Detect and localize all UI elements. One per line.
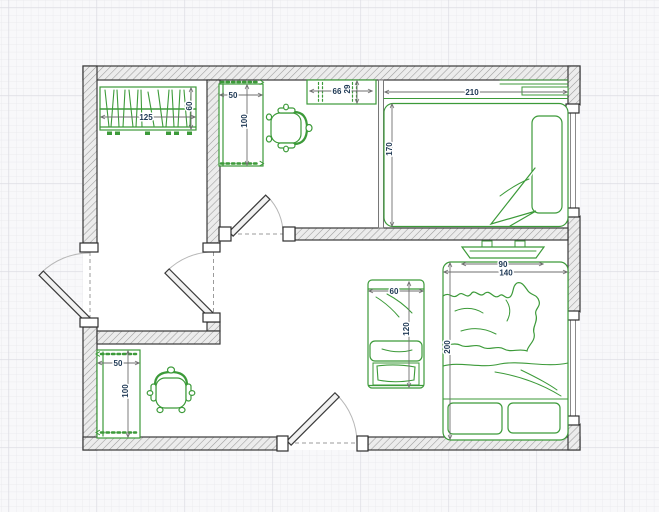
dim-desk-width: 50 bbox=[229, 91, 238, 100]
wall-interior-vertical-stub[interactable] bbox=[207, 322, 220, 331]
door-post bbox=[283, 227, 295, 241]
door-post bbox=[203, 313, 220, 322]
bed[interactable] bbox=[443, 262, 568, 440]
wall-interior-horizontal-left[interactable] bbox=[97, 331, 220, 344]
wall-left-upper[interactable] bbox=[83, 66, 97, 243]
partition-thin-wall[interactable] bbox=[379, 80, 384, 228]
door-post bbox=[80, 243, 98, 252]
dim-bottom-bed-length: 200 bbox=[443, 340, 452, 354]
pillow bbox=[508, 403, 560, 433]
door-post bbox=[203, 243, 220, 252]
chaise-lounge[interactable] bbox=[368, 280, 424, 388]
dim-small-bed-length: 100 bbox=[121, 384, 130, 398]
pillow bbox=[532, 116, 562, 213]
dim-small-bed-width: 50 bbox=[114, 359, 123, 368]
dim-desk-depth: 100 bbox=[240, 114, 249, 128]
pillow bbox=[448, 403, 502, 434]
door-post bbox=[357, 436, 368, 451]
dim-bottom-bed-width: 140 bbox=[499, 269, 513, 278]
double-bed[interactable] bbox=[384, 99, 568, 227]
wall-right-bottom[interactable] bbox=[568, 424, 580, 450]
wall-right-middle[interactable] bbox=[568, 216, 580, 312]
dim-shelf-depth: 29 bbox=[343, 84, 352, 93]
wardrobe[interactable] bbox=[100, 87, 196, 135]
dim-double-bed-width: 210 bbox=[465, 88, 479, 97]
dim-lounger-length: 120 bbox=[402, 322, 411, 336]
floor-plan-drawing[interactable]: 125 60 50 100 66 29 210 170 90 140 200 6… bbox=[0, 0, 659, 512]
wall-interior-vertical[interactable] bbox=[207, 80, 220, 243]
dim-double-bed-depth: 170 bbox=[385, 142, 394, 156]
dim-shelf-width: 66 bbox=[333, 87, 342, 96]
wall-shelf[interactable] bbox=[307, 80, 376, 104]
wall-interior-horizontal-main[interactable] bbox=[295, 228, 568, 240]
wall-top[interactable] bbox=[83, 66, 580, 80]
dim-wardrobe-width: 125 bbox=[139, 113, 153, 122]
door-post bbox=[80, 318, 98, 327]
dim-wardrobe-depth: 60 bbox=[185, 101, 194, 110]
door-post bbox=[277, 436, 288, 451]
floor-plan-canvas[interactable]: 125 60 50 100 66 29 210 170 90 140 200 6… bbox=[0, 0, 659, 512]
wall-right-top[interactable] bbox=[568, 66, 580, 105]
dim-lounger-width: 60 bbox=[390, 287, 399, 296]
door-post bbox=[219, 227, 231, 241]
wall-bottom-left[interactable] bbox=[83, 437, 277, 450]
wall-left-lower[interactable] bbox=[83, 327, 97, 450]
